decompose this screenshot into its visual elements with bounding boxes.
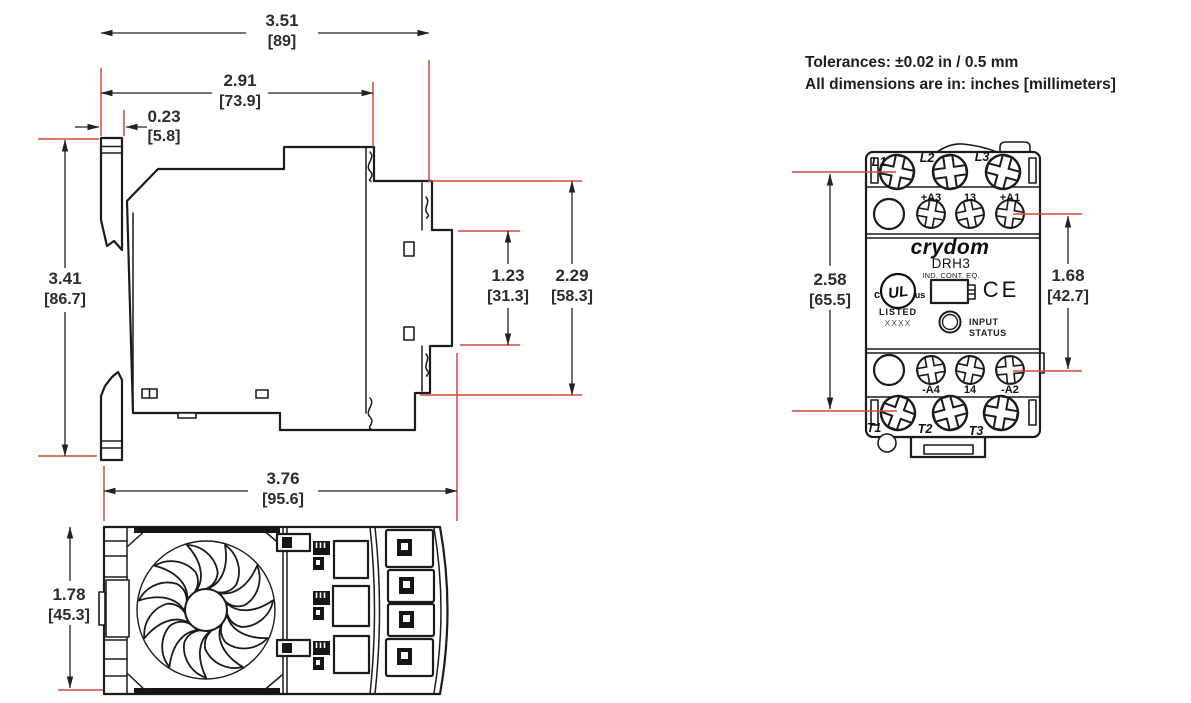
dim-bottom-overall-depth-in: 1.78 bbox=[52, 585, 85, 604]
ul-mark: UL bbox=[887, 283, 909, 303]
technical-drawing: Tolerances: ±0.02 in / 0.5 mm All dimens… bbox=[0, 0, 1191, 703]
tolerance-notes: Tolerances: ±0.02 in / 0.5 mm All dimens… bbox=[805, 54, 1116, 93]
din-clip-upper bbox=[101, 138, 122, 250]
terminal-label-14: 14 bbox=[964, 384, 977, 396]
led-label-input: INPUT bbox=[969, 317, 999, 327]
equipment-label: IND. CONT. EQ. bbox=[922, 271, 979, 280]
terminal-label-t2: T2 bbox=[918, 422, 933, 436]
dim-side-terminal-span-in: 2.29 bbox=[555, 266, 588, 285]
dim-bottom-overall-depth-mm: [45.3] bbox=[48, 607, 90, 624]
units-note: All dimensions are in: inches [millimete… bbox=[805, 76, 1116, 93]
terminal-label-a2: -A2 bbox=[1001, 384, 1019, 396]
dim-side-overall-width-in: 3.51 bbox=[265, 11, 298, 30]
label-window bbox=[931, 280, 975, 303]
side-view-drawing bbox=[101, 138, 452, 460]
relay-body-outline bbox=[127, 147, 452, 430]
input-status-led bbox=[940, 312, 961, 333]
terminal-label-l1: L1 bbox=[872, 155, 887, 169]
ul-listed-label: LISTED bbox=[879, 307, 917, 317]
dim-front-control-span-mm: [42.7] bbox=[1047, 288, 1089, 305]
front-view-drawing: L1 L2 L3 +A3 13 +A1 crydom DRH3 IND. CON… bbox=[866, 142, 1044, 457]
terminal-label-a3: +A3 bbox=[921, 192, 942, 204]
dim-side-overall-height-in: 3.41 bbox=[48, 269, 81, 288]
dim-front-mount-height-mm: [65.5] bbox=[809, 292, 851, 309]
clamp-detail-bottom bbox=[426, 354, 429, 376]
dim-side-terminal-span-mm: [58.3] bbox=[551, 288, 593, 305]
ce-mark: CE bbox=[983, 277, 1020, 302]
dim-side-clip-depth-mm: [5.8] bbox=[148, 128, 181, 145]
terminal-label-a4: -A4 bbox=[922, 384, 941, 396]
dim-side-body-width-mm: [73.9] bbox=[219, 93, 261, 110]
dim-front-mount-height-in: 2.58 bbox=[813, 270, 846, 289]
dim-front-control-span-in: 1.68 bbox=[1051, 266, 1084, 285]
dim-bottom-overall-width-mm: [95.6] bbox=[262, 491, 304, 508]
mount-hole-bottom bbox=[874, 355, 904, 385]
fan-icon bbox=[135, 537, 279, 681]
dimension-drawing-page: Tolerances: ±0.02 in / 0.5 mm All dimens… bbox=[0, 0, 1191, 703]
clamp-spring-top bbox=[368, 152, 372, 181]
terminal-label-l3: L3 bbox=[975, 150, 990, 164]
dim-side-center-section-mm: [31.3] bbox=[487, 288, 529, 305]
top-tab bbox=[1000, 142, 1030, 152]
clamp-detail-top bbox=[426, 197, 429, 218]
dim-side-clip-depth-in: 0.23 bbox=[147, 107, 180, 126]
dim-side-center-section-in: 1.23 bbox=[491, 266, 524, 285]
din-clip-lower bbox=[101, 372, 122, 460]
corner-notch bbox=[878, 434, 896, 452]
terminal-label-a1: +A1 bbox=[1000, 192, 1021, 204]
tolerances-note: Tolerances: ±0.02 in / 0.5 mm bbox=[805, 54, 1018, 71]
dim-side-overall-width-mm: [89] bbox=[268, 33, 296, 50]
terminal-label-t1: T1 bbox=[867, 421, 882, 435]
mount-hole-top bbox=[874, 199, 904, 229]
clamp-spring-bottom bbox=[368, 398, 372, 429]
side-view-dimensions: 3.51 [89] 2.91 [73.9] 0.23 [5.8] 3.41 [8… bbox=[44, 11, 593, 456]
led-label-status: STATUS bbox=[969, 328, 1007, 338]
dim-bottom-overall-width-in: 3.76 bbox=[266, 469, 299, 488]
terminal-label-t3: T3 bbox=[969, 424, 984, 438]
terminal-label-l2: L2 bbox=[920, 151, 935, 165]
bottom-view-drawing bbox=[99, 527, 448, 694]
ul-c: c bbox=[874, 289, 880, 301]
dim-side-body-width-in: 2.91 bbox=[223, 71, 256, 90]
dim-side-overall-height-mm: [86.7] bbox=[44, 291, 86, 308]
terminal-label-13: 13 bbox=[964, 192, 976, 204]
ul-us: us bbox=[915, 290, 926, 300]
model-number: DRH3 bbox=[932, 256, 971, 271]
ul-file-code: XXXX bbox=[885, 318, 912, 328]
